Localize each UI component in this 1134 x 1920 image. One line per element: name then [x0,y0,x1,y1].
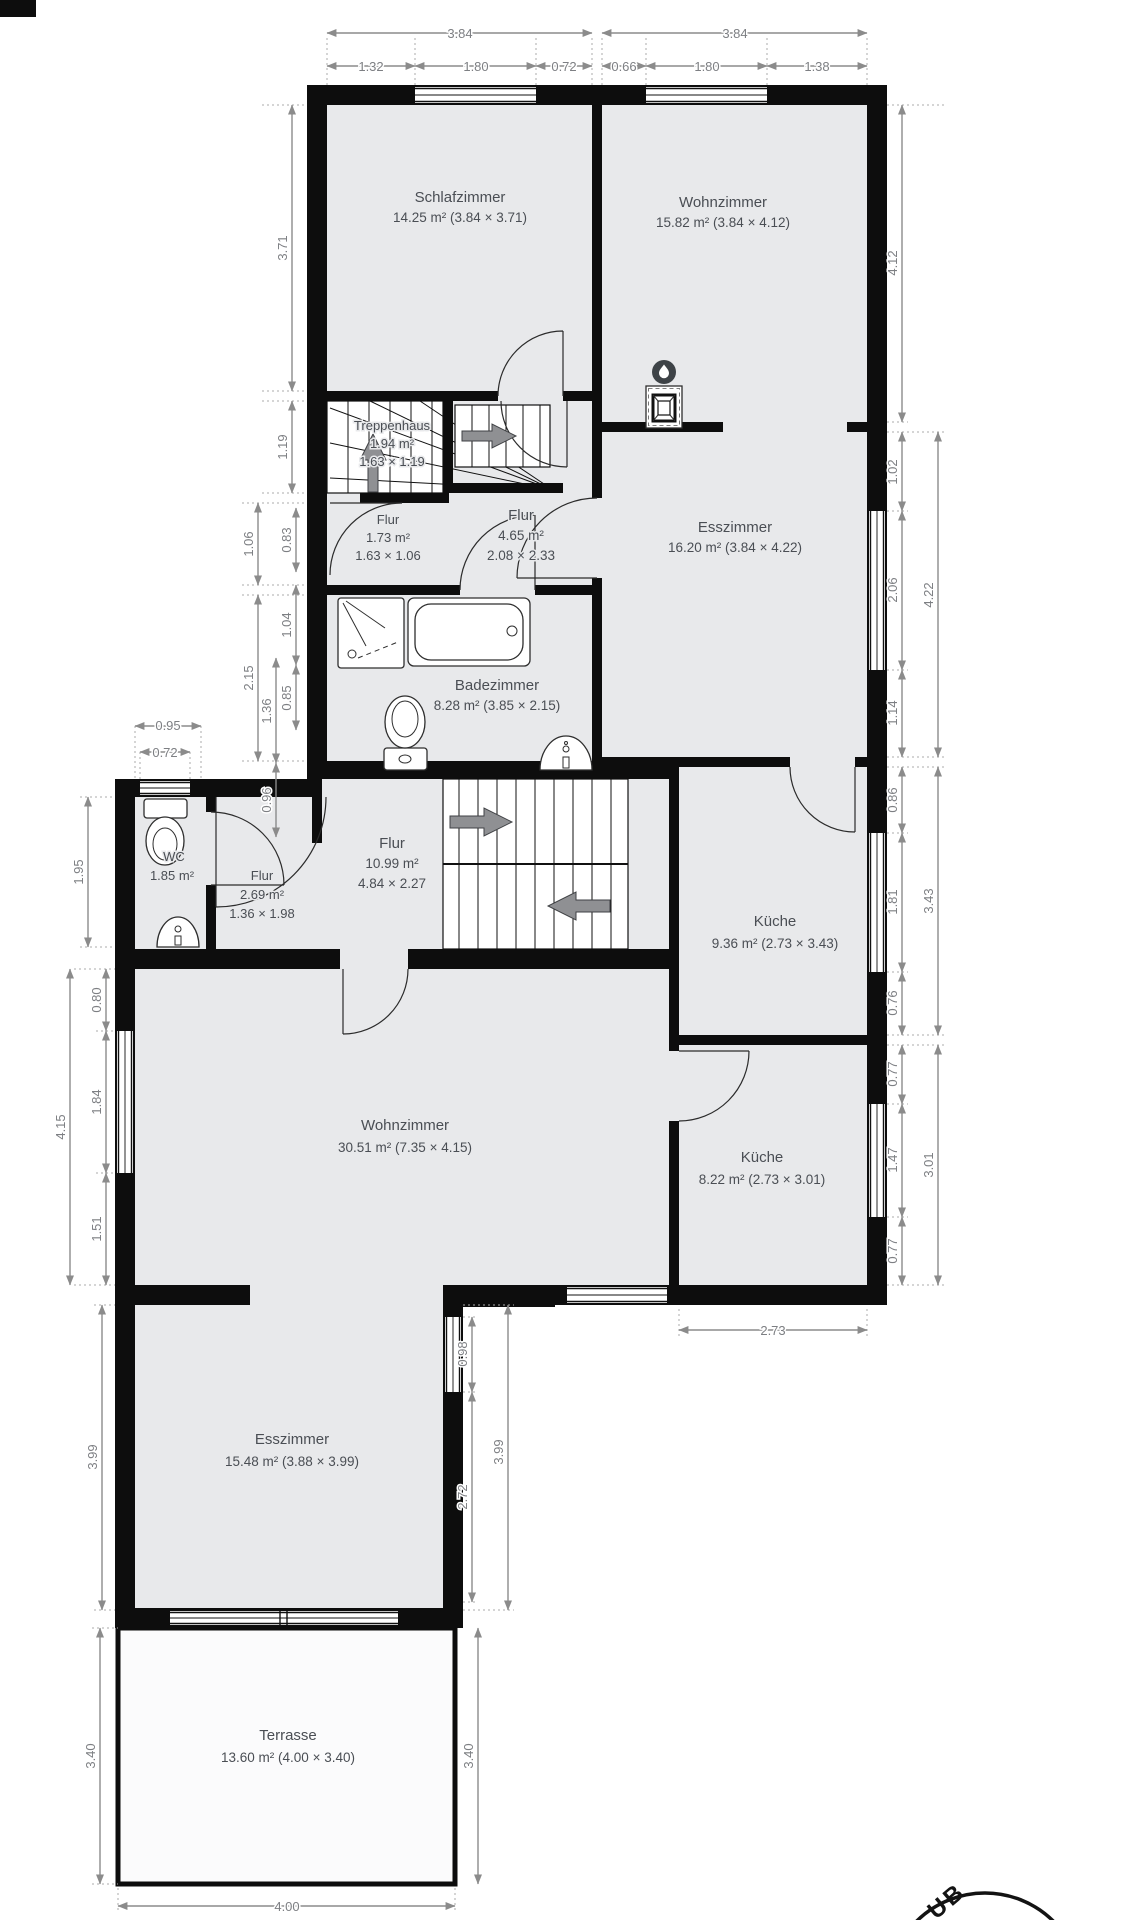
toilet-badezimmer [384,696,427,770]
dim-label: 1.38 [804,59,829,74]
room-label: Wohnzimmer [679,194,767,211]
room-size: 1.63 × 1.06 [355,548,420,563]
room-area: 13.60 m² (4.00 × 3.40) [221,1750,355,1765]
dim-label: 3.84 [722,26,747,41]
floorplan-drawing: 3.84 3.84 1.32 1.80 0.72 0.66 1.80 1.38 … [0,0,1134,1920]
room-label: Esszimmer [698,519,772,536]
room-label: Flur [508,507,534,524]
room-area: 8.22 m² (2.73 × 3.01) [699,1172,825,1187]
floorplan-page: 3.84 3.84 1.32 1.80 0.72 0.66 1.80 1.38 … [0,0,1134,1920]
room-size: 4.84 × 2.27 [358,876,426,891]
dim-label: 0.85 [279,685,294,710]
room-area: 10.99 m² [365,856,419,871]
dim-label: 1.04 [279,612,294,637]
dim-label: 2.73 [760,1323,785,1338]
room-area: 1.73 m² [366,530,411,545]
window-wohnzimmer-og [646,87,767,103]
dim-label: 0.77 [885,1238,900,1263]
window-wohnzimmer-eg-sued [567,1287,667,1303]
dim-label: 1.95 [71,859,86,884]
dim-label: 1.84 [89,1089,104,1114]
room-area: 2.69 m² [240,887,285,902]
room-label: Flur [251,868,274,883]
shower [338,598,404,668]
room-label: Küche [741,1149,784,1166]
window-wohnzimmer-eg-west [117,1031,133,1173]
dim-label: 3.40 [461,1743,476,1768]
dim-label: 0.72 [551,59,576,74]
dim-label: 0.98 [455,1341,470,1366]
dim-label: 1.80 [463,59,488,74]
dim-label: 4.00 [274,1899,299,1914]
dim-label: 1.51 [89,1216,104,1241]
room-area: 1.94 m² [370,436,415,451]
room-label: Esszimmer [255,1431,329,1448]
room-area: 8.28 m² (3.85 × 2.15) [434,698,560,713]
dim-label: 1.80 [694,59,719,74]
room-area: 9.36 m² (2.73 × 3.43) [712,936,838,951]
dim-label: 3.43 [921,888,936,913]
dim-label: 4.22 [921,582,936,607]
room-label: Küche [754,913,797,930]
dim-label: 0.80 [89,987,104,1012]
window-wc [140,781,190,795]
dim-label: 4.15 [53,1114,68,1139]
dim-label: 4.12 [885,250,900,275]
dim-label: 0.96 [259,787,274,812]
dim-label: 1.32 [358,59,383,74]
watermark-stamp: UB [888,1878,1082,1920]
dim-label: 3.71 [275,235,290,260]
dim-label: 3.01 [921,1152,936,1177]
dim-label: 3.99 [85,1444,100,1469]
dim-label: 0.86 [885,787,900,812]
dim-label: 0.95 [155,718,180,733]
window-esszimmer-og [869,511,885,670]
dim-label: 2.06 [885,577,900,602]
room-label: Wohnzimmer [361,1117,449,1134]
dim-label: 1.06 [241,531,256,556]
room-label: Flur [379,835,405,852]
dim-label: 0.72 [152,745,177,760]
dim-label: 0.76 [885,990,900,1015]
room-size: 2.08 × 2.33 [487,548,555,563]
room-area: 15.48 m² (3.88 × 3.99) [225,1454,359,1469]
dim-label: 1.19 [275,434,290,459]
dim-label: 1.47 [885,1147,900,1172]
dim-label: 1.14 [885,700,900,725]
room-area: 16.20 m² (3.84 × 4.22) [668,540,802,555]
room-area: 30.51 m² (7.35 × 4.15) [338,1140,472,1155]
room-size: 1.36 × 1.98 [229,906,294,921]
dim-label: 1.36 [259,698,274,723]
room-label: WC [163,849,185,864]
dim-label: 1.02 [885,459,900,484]
room-label: Flur [377,512,400,527]
room-label: Terrasse [259,1727,317,1744]
dim-label: 2.15 [241,665,256,690]
room-label: Schlafzimmer [415,189,506,206]
room-label: Badezimmer [455,677,539,694]
room-label: Treppenhaus [354,418,431,433]
dim-label: 1.81 [885,889,900,914]
window-kueche-eg [869,1104,885,1217]
staircase-main [443,779,628,949]
dim-label: 0.77 [885,1061,900,1086]
room-size: 1.63 × 1.19 [359,454,424,469]
room-area: 4.65 m² [498,528,544,543]
room-area: 1.85 m² [150,868,195,883]
corner-mark [0,0,36,17]
room-area: 15.82 m² (3.84 × 4.12) [656,215,790,230]
dim-label: 3.99 [491,1439,506,1464]
dim-label: 0.83 [279,527,294,552]
dim-label: 0.66 [611,59,636,74]
window-schlafzimmer [415,87,536,103]
dim-label: 3.40 [83,1743,98,1768]
room-area: 14.25 m² (3.84 × 3.71) [393,210,527,225]
window-kueche-og [869,833,885,972]
dim-label: 2.72 [455,1484,470,1509]
dim-label: 3.84 [447,26,472,41]
bathtub [408,598,530,666]
window-esszimmer-eg-sued [170,1611,398,1625]
watermark-text: UB [923,1878,972,1920]
